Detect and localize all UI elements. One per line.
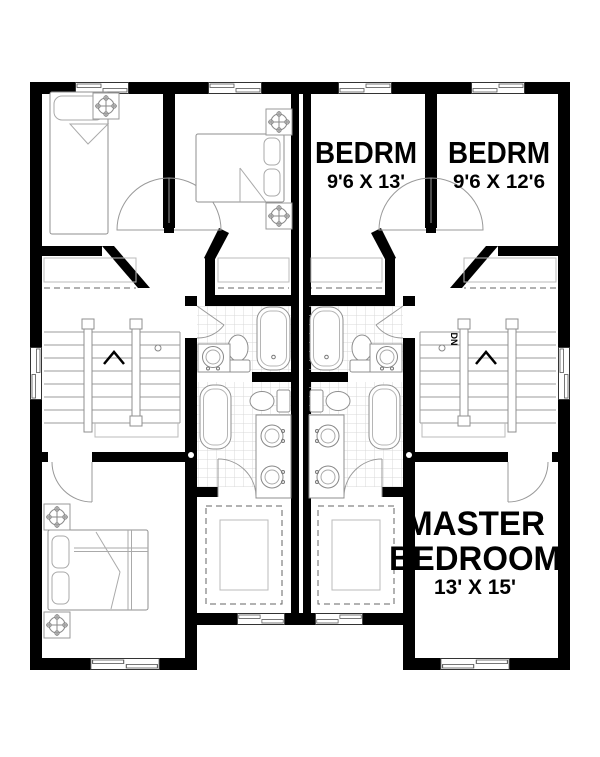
master-bedroom-label-line1: MASTER (405, 505, 545, 543)
bedroom-outer-label: BEDRM (448, 135, 550, 170)
floor-plan: BEDRM 9'6 X 13' BEDRM 9'6 X 12'6 MASTER … (0, 0, 600, 757)
stairs-down-label: DN (449, 333, 459, 346)
master-bed (48, 530, 148, 610)
floor-plan-page: BEDRM 9'6 X 13' BEDRM 9'6 X 12'6 MASTER … (0, 0, 600, 757)
double-bed (196, 134, 284, 202)
bedroom-inner-label: BEDRM (315, 135, 417, 170)
nightstand-lamp-icon (44, 504, 70, 530)
ceiling-fan-icon (93, 93, 119, 119)
bedroom-outer-dimensions: 9'6 X 12'6 (453, 172, 545, 193)
bedroom-inner-dimensions: 9'6 X 13' (327, 172, 405, 193)
master-bedroom-dimensions: 13' X 15' (434, 576, 516, 599)
nightstand-lamp-icon (44, 612, 70, 638)
nightstand-lamp-icon (266, 109, 292, 135)
master-bedroom-label-line2: BEDROOM (389, 540, 561, 578)
nightstand-lamp-icon (266, 203, 292, 229)
